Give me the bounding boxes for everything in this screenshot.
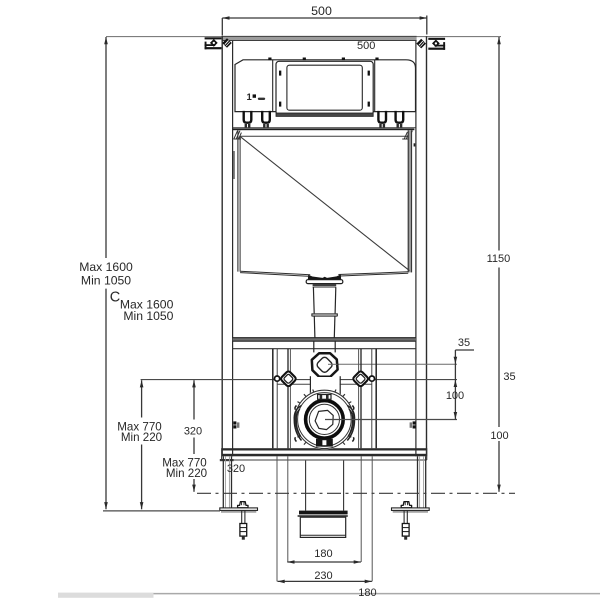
svg-text:35: 35 — [503, 371, 515, 383]
svg-text:180: 180 — [358, 587, 376, 599]
svg-text:Min 1050: Min 1050 — [81, 274, 131, 288]
svg-text:Max 1600: Max 1600 — [79, 260, 133, 274]
svg-text:320: 320 — [227, 463, 245, 475]
svg-text:35: 35 — [458, 337, 470, 349]
svg-text:Min 220: Min 220 — [166, 467, 207, 480]
svg-text:1150: 1150 — [487, 253, 511, 265]
svg-text:230: 230 — [314, 570, 332, 582]
svg-text:320: 320 — [184, 425, 202, 437]
svg-text:500: 500 — [311, 4, 332, 18]
svg-text:500: 500 — [357, 40, 375, 52]
svg-text:180: 180 — [314, 548, 332, 560]
svg-text:100: 100 — [490, 430, 508, 442]
svg-text:1: 1 — [247, 92, 253, 103]
svg-text:Min 220: Min 220 — [121, 431, 162, 444]
svg-text:Min 1050: Min 1050 — [123, 309, 173, 323]
svg-text:C: C — [110, 289, 120, 305]
svg-text:100: 100 — [446, 390, 464, 402]
